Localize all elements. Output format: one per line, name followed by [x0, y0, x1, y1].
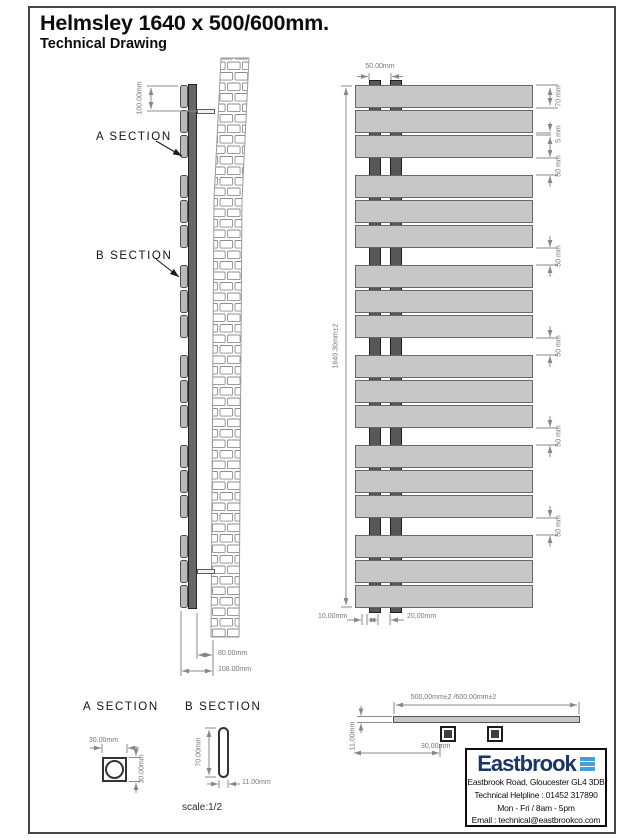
side-panel-strip	[180, 290, 188, 313]
side-panel-strip	[180, 110, 188, 133]
top-view-dim-width: 500,00mm±2 /600,00mm±2	[381, 693, 526, 702]
section-b-dim-height: 70.00mm	[195, 737, 204, 766]
info-address: Eastbrook Road, Gloucester GL4 3DB	[467, 776, 605, 789]
section-a-dim-height: 30.00mm	[138, 754, 147, 783]
dim-bracket-top: 100.00mm	[136, 81, 145, 114]
dim-tube-spacing: 20,00mm	[407, 612, 436, 621]
side-panel-strip	[180, 535, 188, 558]
eastbrook-logo: Eastbrook	[467, 752, 605, 776]
eastbrook-logo-icon	[580, 757, 595, 771]
wall-bracket-top	[197, 109, 215, 114]
scale-note: scale:1/2	[182, 802, 222, 813]
radiator-panel	[355, 265, 533, 288]
radiator-panel	[355, 110, 533, 133]
radiator-panel	[355, 470, 533, 493]
side-panel-strip	[180, 585, 188, 608]
side-panel-strip	[180, 445, 188, 468]
side-view-collector-bar	[188, 84, 197, 609]
radiator-panel	[355, 445, 533, 468]
eastbrook-info-box: Eastbrook Eastbrook Road, Gloucester GL4…	[465, 748, 607, 827]
info-hours: Mon - Fri / 8am - 5pm	[467, 802, 605, 815]
page-subtitle: Technical Drawing	[40, 36, 167, 52]
collector-tube-right	[390, 80, 402, 613]
top-view-tube-right-core	[491, 730, 499, 738]
top-view-dim-thickness: 11,00mm	[349, 722, 358, 751]
side-panel-strip	[180, 135, 188, 158]
radiator-panel	[355, 495, 533, 518]
side-panel-strip	[180, 405, 188, 428]
radiator-panel	[355, 85, 533, 108]
radiator-panel	[355, 380, 533, 403]
side-panel-strip	[180, 265, 188, 288]
radiator-panel	[355, 290, 533, 313]
dim-group-gap-4: 50 mm	[555, 425, 564, 446]
top-view-tube-right	[487, 726, 503, 742]
dim-bottom-offset: 10,00mm	[318, 612, 346, 621]
collector-tube-left	[369, 80, 381, 613]
radiator-panel	[355, 175, 533, 198]
dim-panel-height: 70 mm	[555, 85, 564, 106]
section-a-circle	[105, 760, 124, 779]
info-email: Email : technical@eastbrookco.com	[467, 814, 605, 827]
side-panel-strip	[180, 355, 188, 378]
dim-panel-gap: 5 mm	[555, 125, 564, 143]
radiator-panel	[355, 355, 533, 378]
top-view-tube-left-core	[444, 730, 452, 738]
side-panel-strip	[180, 200, 188, 223]
side-panel-strip	[180, 85, 188, 108]
dim-group-gap-5: 50 mm	[555, 515, 564, 536]
technical-drawing-page: Helmsley 1640 x 500/600mm. Technical Dra…	[0, 0, 643, 840]
page-title: Helmsley 1640 x 500/600mm.	[40, 11, 329, 36]
radiator-panel	[355, 315, 533, 338]
top-view-panel-bar	[393, 716, 580, 723]
dim-wall-to-front: 108.00mm	[218, 665, 251, 674]
section-b-title: B SECTION	[185, 701, 261, 713]
radiator-panel	[355, 200, 533, 223]
radiator-panel	[355, 585, 533, 608]
dim-group-gap-1: 50 mm	[555, 155, 564, 176]
radiator-panel	[355, 535, 533, 558]
section-a-dim-width: 30.00mm	[80, 736, 127, 745]
side-panel-strip	[180, 175, 188, 198]
section-a-title: A SECTION	[83, 701, 159, 713]
radiator-panel	[355, 560, 533, 583]
side-panel-strip	[180, 380, 188, 403]
side-panel-strip	[180, 470, 188, 493]
dim-group-gap-2: 50 mm	[555, 245, 564, 266]
radiator-panel	[355, 225, 533, 248]
side-panel-strip	[180, 495, 188, 518]
wall-bracket-bottom	[197, 569, 215, 574]
side-panel-strip	[180, 225, 188, 248]
dim-wall-to-body: 80.00mm	[218, 649, 247, 658]
radiator-panel	[355, 135, 533, 158]
side-section-a-label: A SECTION	[96, 131, 172, 143]
section-b-dim-width: 11.00mm	[242, 778, 271, 787]
top-view-dim-offset: 30,00mm	[421, 742, 450, 751]
info-helpline: Technical Helpline : 01452 317890	[467, 789, 605, 802]
dim-tube-centres: 50.00mm	[352, 62, 408, 71]
radiator-panel	[355, 405, 533, 428]
side-section-b-label: B SECTION	[96, 250, 172, 262]
dim-overall-height: 1640.30mm±2	[332, 324, 341, 369]
section-b-oval	[218, 727, 229, 778]
section-a-square	[102, 757, 127, 782]
side-panel-strip	[180, 560, 188, 583]
top-view-tube-left	[440, 726, 456, 742]
side-panel-strip	[180, 315, 188, 338]
dim-group-gap-3: 50 mm	[555, 335, 564, 356]
eastbrook-brand-text: Eastbrook	[477, 751, 576, 777]
